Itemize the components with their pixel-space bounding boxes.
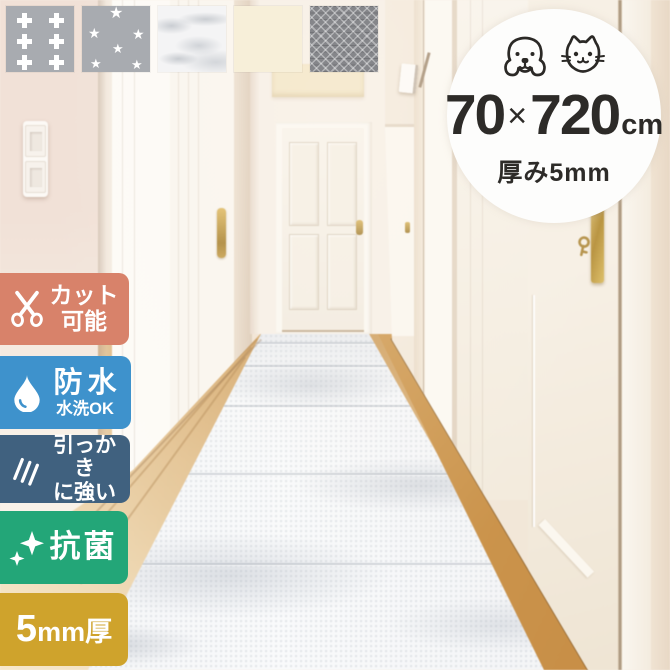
swatch-ornate-pattern xyxy=(310,6,378,72)
water-drop-icon xyxy=(7,374,47,412)
badge-label: に強い xyxy=(47,481,122,505)
thickness-value: 5 xyxy=(16,608,37,651)
feature-badge-antibacterial: 抗菌 xyxy=(0,511,128,584)
badge-label: 水洗OK xyxy=(47,400,123,418)
swatch-star-pattern xyxy=(82,6,150,72)
swatch-cross-pattern xyxy=(6,6,74,72)
size-width: 70 xyxy=(445,87,504,144)
size-text: 70 × 720 cm xyxy=(445,87,663,144)
swatch-marble-pattern xyxy=(158,6,226,72)
sparkle-icon xyxy=(7,529,47,567)
scissors-icon xyxy=(7,289,47,329)
badge-label: 可能 xyxy=(47,309,121,335)
size-badge: 70 × 720 cm 厚み5mm xyxy=(447,9,661,223)
badge-label: 引っかき xyxy=(47,434,122,481)
size-unit: cm xyxy=(621,111,663,140)
badge-label: 防水 xyxy=(52,367,123,399)
badge-label: 抗菌 xyxy=(47,530,120,565)
size-length: 720 xyxy=(530,87,619,144)
size-times: × xyxy=(507,99,527,133)
dog-icon xyxy=(501,34,549,80)
thickness-suffix: 厚 xyxy=(85,617,112,647)
product-image: 70 × 720 cm 厚み5mm カット 可能 xyxy=(0,0,670,670)
thickness-text: 厚み5mm xyxy=(497,153,610,189)
pet-icons xyxy=(501,34,607,80)
badge-label: カット xyxy=(47,283,121,309)
feature-badge-thickness: 5 mm 厚 xyxy=(0,593,128,666)
badge-label: 5 mm 厚 xyxy=(0,608,128,651)
scratch-icon xyxy=(7,452,47,486)
feature-badge-scratch-resistant: 引っかき に強い xyxy=(0,435,130,503)
pattern-swatches xyxy=(6,6,378,72)
cat-icon xyxy=(559,34,607,80)
feature-badge-waterproof: 防水 水洗OK xyxy=(0,356,131,429)
thickness-unit: mm xyxy=(37,617,85,647)
swatch-cream-plain xyxy=(234,6,302,72)
feature-badge-cuttable: カット 可能 xyxy=(0,273,129,345)
